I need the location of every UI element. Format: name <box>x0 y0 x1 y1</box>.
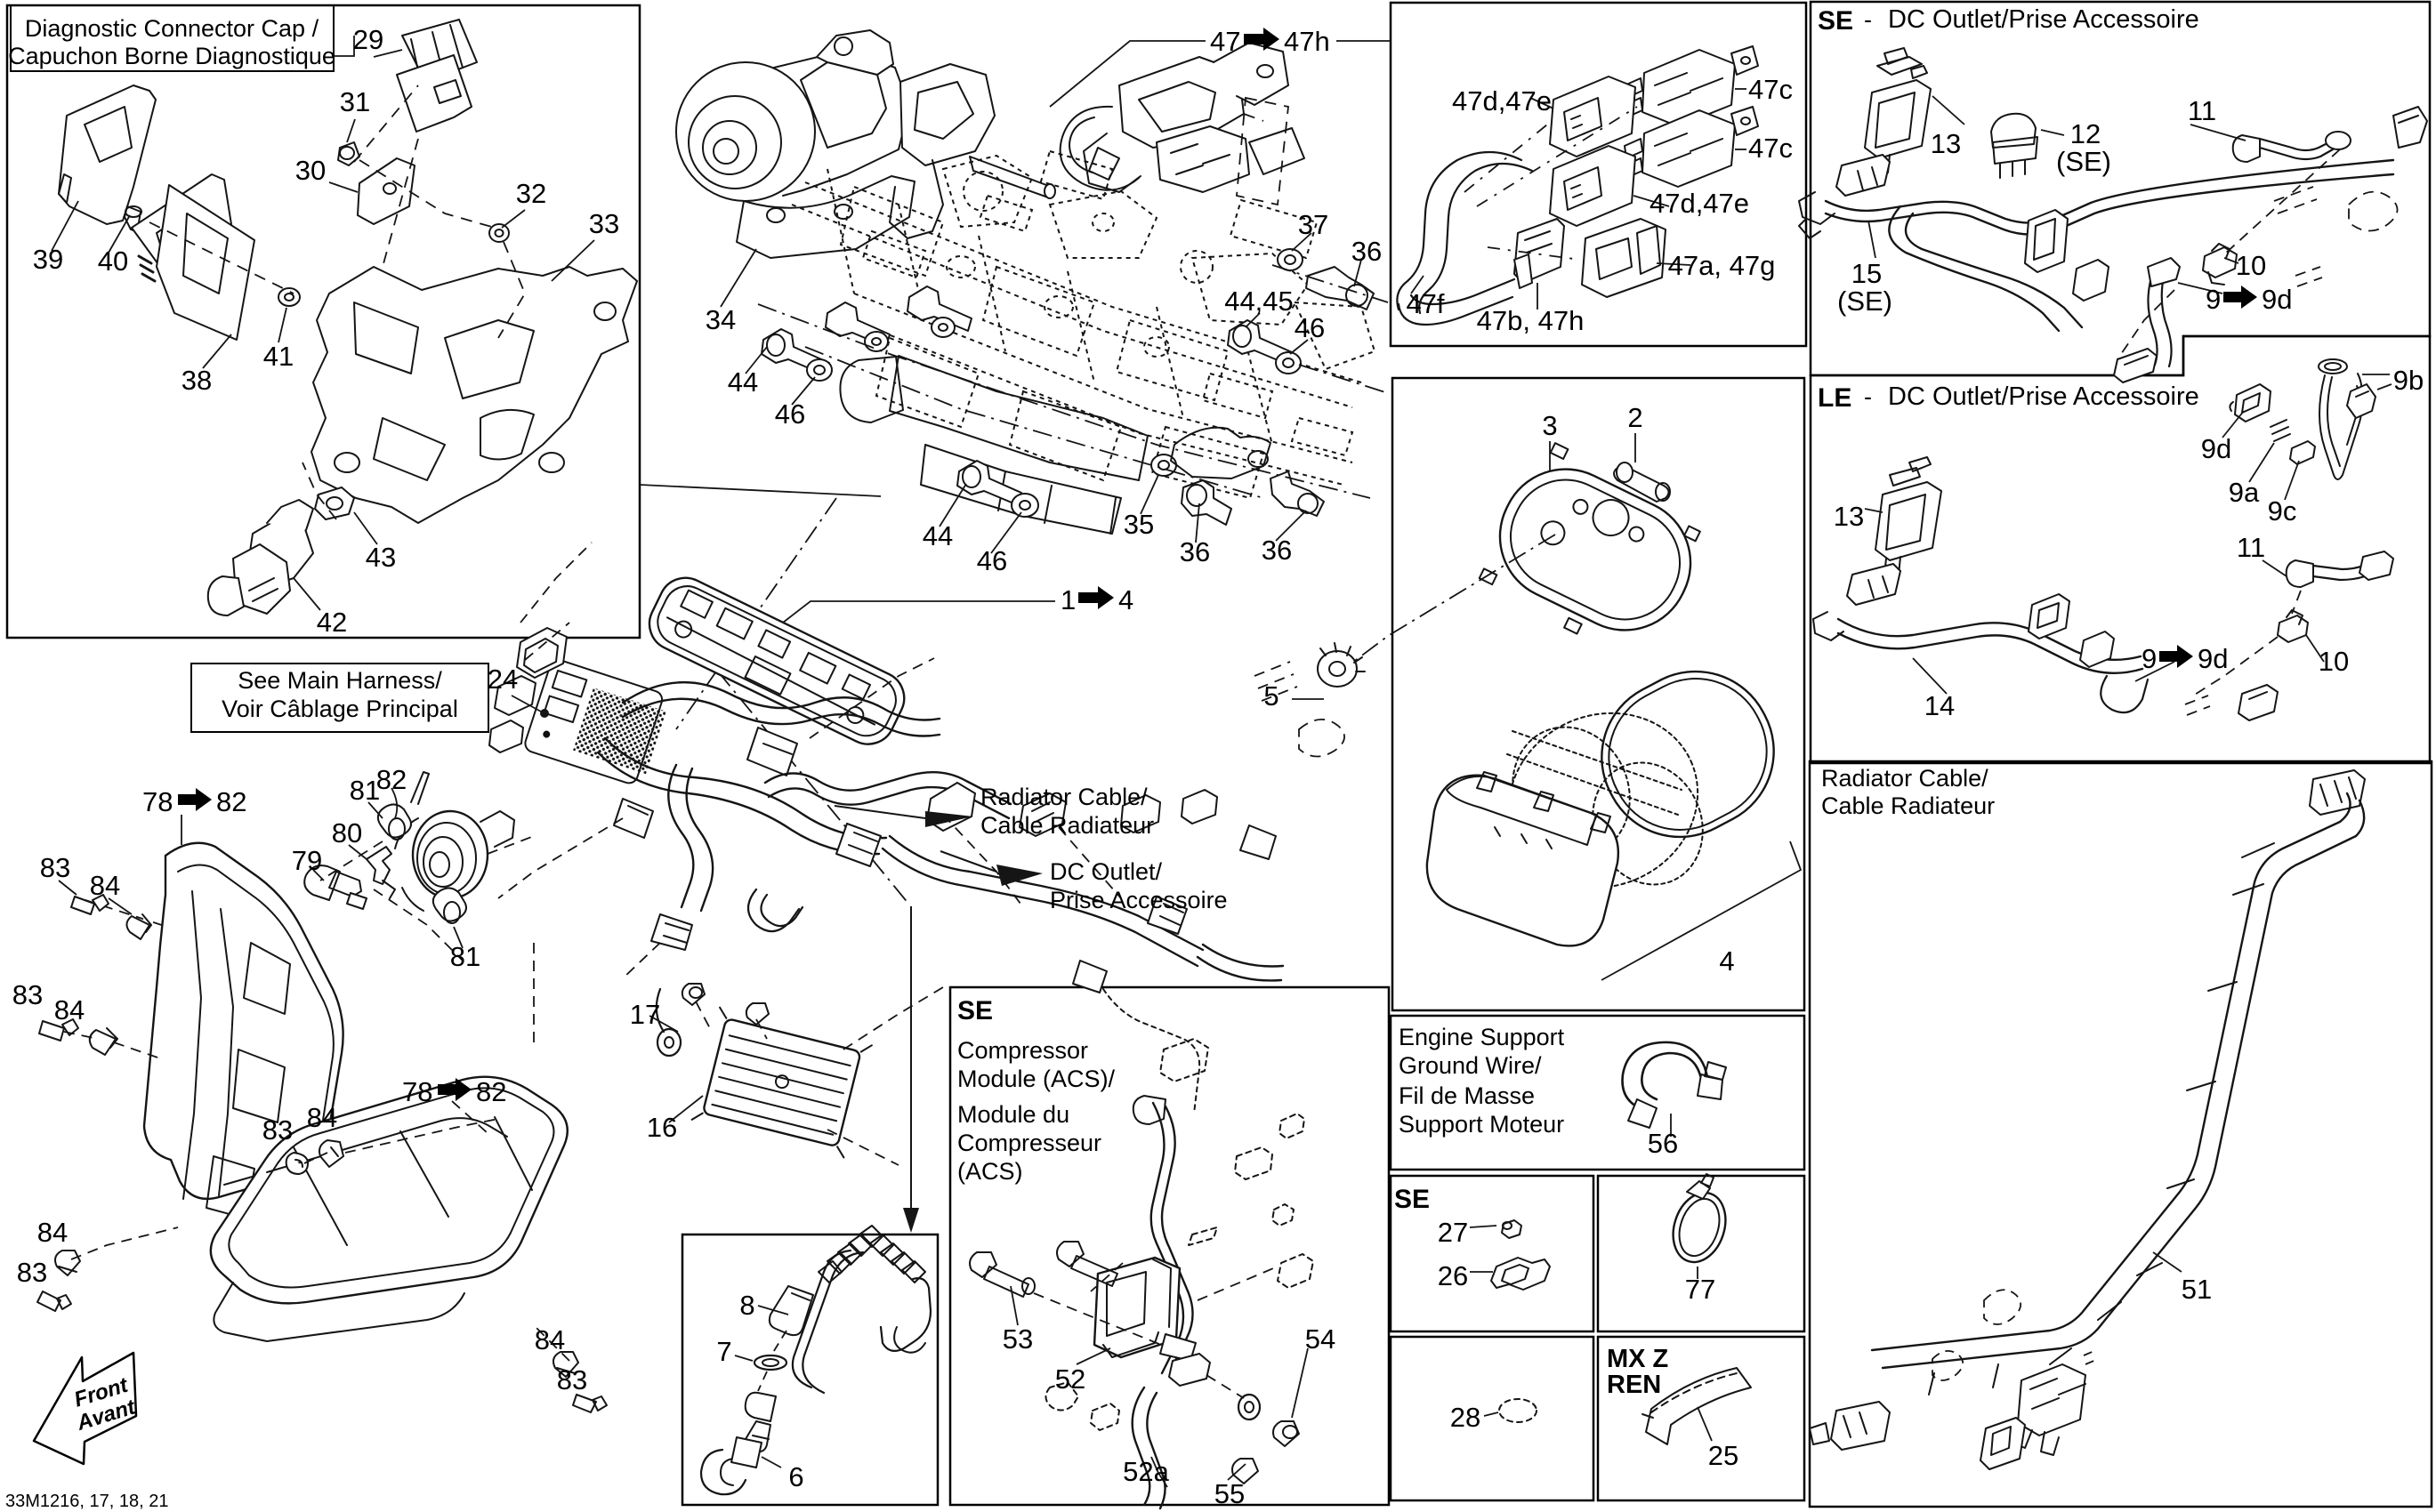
svg-text:46: 46 <box>775 398 805 430</box>
svg-text:29: 29 <box>353 24 383 55</box>
svg-text:Cable Radiateur: Cable Radiateur <box>980 812 1154 839</box>
svg-text:DC Outlet/Prise Accessoire: DC Outlet/Prise Accessoire <box>1888 5 2199 34</box>
svg-text:7: 7 <box>716 1336 731 1367</box>
svg-text:47f: 47f <box>1406 288 1444 319</box>
svg-text:24: 24 <box>488 664 518 695</box>
svg-text:83: 83 <box>40 852 70 883</box>
svg-text:82: 82 <box>216 786 246 817</box>
svg-text:10: 10 <box>2236 250 2266 281</box>
svg-text:REN: REN <box>1607 1371 1661 1399</box>
svg-text:11: 11 <box>2188 95 2216 126</box>
svg-text:13: 13 <box>1931 128 1961 159</box>
svg-text:Module (ACS)/: Module (ACS)/ <box>957 1066 1116 1092</box>
svg-text:83: 83 <box>557 1364 587 1395</box>
svg-text:83: 83 <box>262 1114 293 1146</box>
svg-text:54: 54 <box>1305 1323 1335 1355</box>
svg-text:-: - <box>1864 6 1872 33</box>
svg-text:Voir Câblage Principal: Voir Câblage Principal <box>222 696 458 722</box>
svg-text:12: 12 <box>2070 118 2101 149</box>
svg-text:84: 84 <box>307 1102 337 1133</box>
svg-text:Ground Wire/: Ground Wire/ <box>1399 1052 1542 1079</box>
svg-text:53: 53 <box>1003 1323 1033 1355</box>
svg-text:1: 1 <box>1061 584 1076 615</box>
svg-text:Support Moteur: Support Moteur <box>1399 1111 1564 1138</box>
svg-text:27: 27 <box>1438 1217 1468 1248</box>
svg-text:47: 47 <box>1210 26 1240 57</box>
svg-text:SE: SE <box>1818 6 1853 36</box>
svg-text:Engine Support: Engine Support <box>1399 1024 1565 1050</box>
svg-text:36: 36 <box>1262 535 1292 566</box>
svg-text:17: 17 <box>630 999 660 1030</box>
svg-text:36: 36 <box>1351 236 1382 267</box>
svg-text:77: 77 <box>1685 1274 1715 1305</box>
svg-text:9d: 9d <box>2201 433 2231 464</box>
svg-text:Compresseur: Compresseur <box>957 1130 1101 1156</box>
svg-text:47a, 47g: 47a, 47g <box>1668 250 1776 281</box>
svg-text:33M1216, 17, 18, 21: 33M1216, 17, 18, 21 <box>5 1492 168 1511</box>
svg-text:16: 16 <box>647 1112 677 1143</box>
svg-text:78: 78 <box>142 786 173 817</box>
svg-text:36: 36 <box>1180 536 1210 567</box>
svg-text:11: 11 <box>2237 532 2265 563</box>
svg-text:26: 26 <box>1438 1260 1468 1291</box>
svg-text:Prise Accessoire: Prise Accessoire <box>1050 887 1228 913</box>
svg-text:13: 13 <box>1834 501 1864 532</box>
svg-text:LE: LE <box>1818 383 1851 413</box>
svg-text:Module du: Module du <box>957 1101 1069 1128</box>
svg-text:25: 25 <box>1708 1440 1738 1471</box>
svg-text:84: 84 <box>54 994 85 1025</box>
svg-text:9d: 9d <box>2262 284 2292 315</box>
svg-text:Cable Radiateur: Cable Radiateur <box>1821 792 1995 819</box>
svg-text:52: 52 <box>1055 1363 1085 1395</box>
svg-text:82: 82 <box>476 1076 506 1107</box>
svg-text:82: 82 <box>376 764 407 795</box>
svg-text:8: 8 <box>739 1290 754 1321</box>
svg-text:(ACS): (ACS) <box>957 1158 1023 1185</box>
svg-text:9: 9 <box>2206 284 2221 315</box>
svg-text:41: 41 <box>263 341 294 372</box>
svg-text:28: 28 <box>1450 1402 1480 1433</box>
svg-text:9d: 9d <box>2198 643 2228 674</box>
svg-text:Compressor: Compressor <box>957 1037 1088 1064</box>
svg-text:81: 81 <box>350 775 380 806</box>
svg-text:See Main Harness/: See Main Harness/ <box>238 667 442 694</box>
svg-text:33: 33 <box>589 208 619 239</box>
svg-text:32: 32 <box>516 178 546 209</box>
svg-text:38: 38 <box>181 365 212 396</box>
svg-text:37: 37 <box>1298 209 1328 240</box>
svg-text:47h: 47h <box>1284 26 1330 57</box>
svg-text:44: 44 <box>923 520 953 551</box>
svg-text:84: 84 <box>90 870 120 901</box>
svg-text:DC Outlet/: DC Outlet/ <box>1050 858 1163 885</box>
svg-text:39: 39 <box>33 244 63 275</box>
svg-text:34: 34 <box>706 304 736 335</box>
svg-text:14: 14 <box>1924 690 1955 721</box>
svg-text:Radiator Cable/: Radiator Cable/ <box>980 784 1148 810</box>
svg-text:44,45: 44,45 <box>1224 286 1294 317</box>
svg-text:(SE): (SE) <box>2056 146 2111 177</box>
svg-text:84: 84 <box>535 1324 565 1355</box>
svg-text:4: 4 <box>1118 584 1133 615</box>
svg-text:SE: SE <box>957 996 993 1025</box>
svg-text:84: 84 <box>37 1217 68 1248</box>
svg-text:47c: 47c <box>1748 133 1793 164</box>
svg-text:83: 83 <box>12 979 43 1010</box>
svg-text:10: 10 <box>2319 646 2349 677</box>
svg-text:80: 80 <box>332 817 362 848</box>
svg-text:55: 55 <box>1214 1478 1245 1509</box>
svg-text:9c: 9c <box>2268 495 2297 527</box>
svg-text:9b: 9b <box>2393 365 2424 396</box>
svg-text:Radiator Cable/: Radiator Cable/ <box>1821 765 1988 792</box>
svg-text:MX Z: MX Z <box>1607 1345 1668 1373</box>
svg-text:(SE): (SE) <box>1837 286 1892 317</box>
svg-text:42: 42 <box>317 607 347 638</box>
svg-text:78: 78 <box>402 1076 432 1107</box>
svg-text:46: 46 <box>1295 312 1325 343</box>
svg-text:9: 9 <box>2142 643 2157 674</box>
svg-text:DC Outlet/Prise Accessoire: DC Outlet/Prise Accessoire <box>1888 382 2199 411</box>
svg-text:3: 3 <box>1542 410 1557 441</box>
svg-text:Fil de Masse: Fil de Masse <box>1399 1082 1535 1109</box>
svg-text:47d,47e: 47d,47e <box>1452 85 1552 117</box>
svg-text:43: 43 <box>366 542 396 573</box>
svg-text:81: 81 <box>450 941 480 972</box>
svg-text:47c: 47c <box>1748 74 1793 105</box>
svg-text:47d,47e: 47d,47e <box>1650 188 1749 219</box>
svg-text:5: 5 <box>1263 680 1278 712</box>
svg-text:44: 44 <box>728 366 758 398</box>
svg-text:30: 30 <box>295 155 326 186</box>
svg-text:9a: 9a <box>2229 477 2260 508</box>
svg-text:Diagnostic Connector Cap /: Diagnostic Connector Cap / <box>25 15 319 42</box>
svg-text:-: - <box>1864 383 1872 410</box>
svg-text:46: 46 <box>977 545 1007 576</box>
svg-text:6: 6 <box>788 1461 803 1492</box>
svg-text:SE: SE <box>1394 1185 1430 1214</box>
svg-text:Capuchon Borne Diagnostique: Capuchon Borne Diagnostique <box>8 43 335 69</box>
svg-text:47b, 47h: 47b, 47h <box>1477 305 1585 336</box>
svg-text:4: 4 <box>1719 945 1734 977</box>
svg-text:15: 15 <box>1851 258 1882 289</box>
svg-text:52a: 52a <box>1123 1456 1169 1487</box>
svg-text:35: 35 <box>1124 509 1154 540</box>
svg-text:40: 40 <box>98 245 128 277</box>
svg-text:2: 2 <box>1627 402 1642 433</box>
svg-text:51: 51 <box>2182 1274 2212 1305</box>
svg-text:83: 83 <box>17 1257 47 1288</box>
svg-text:79: 79 <box>292 845 322 876</box>
svg-text:56: 56 <box>1648 1128 1678 1159</box>
svg-text:31: 31 <box>340 86 370 117</box>
